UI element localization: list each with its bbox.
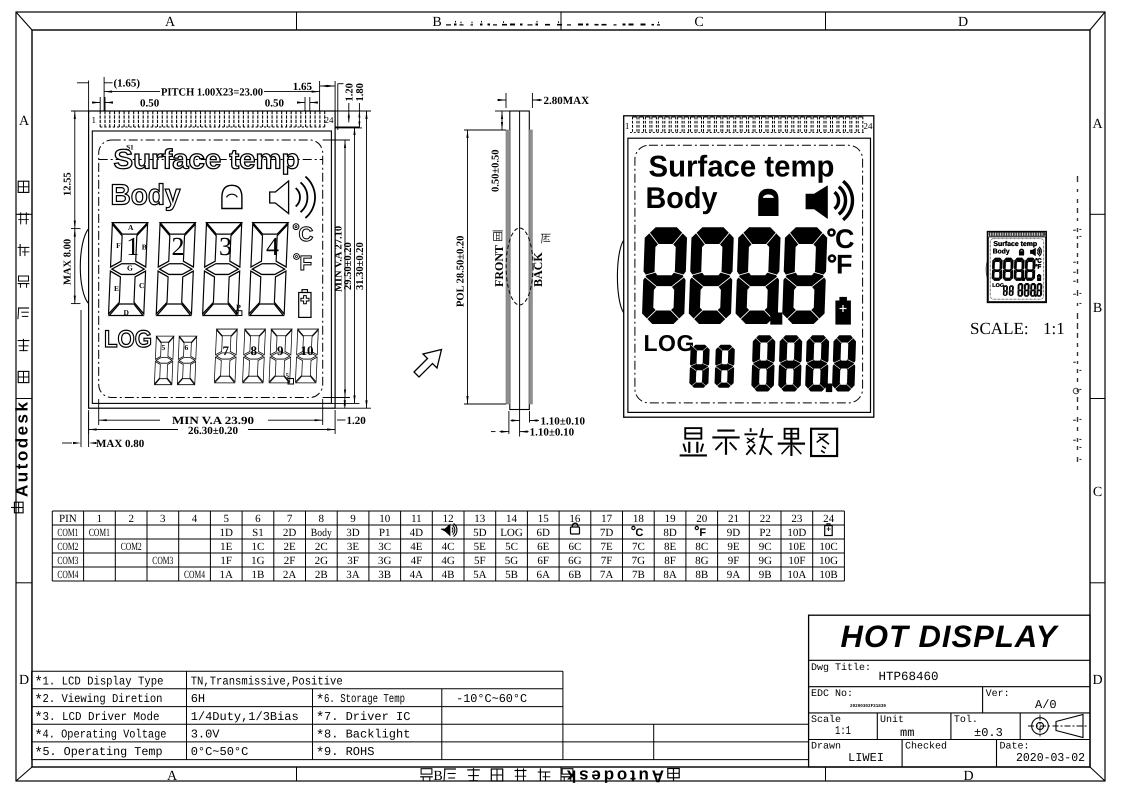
- svg-text:10G: 10G: [819, 555, 838, 567]
- svg-text:TN,Transmissive,Positive: TN,Transmissive,Positive: [191, 674, 343, 688]
- svg-text:4D: 4D: [410, 527, 424, 539]
- svg-text:B: B: [142, 243, 147, 252]
- svg-text:1.65: 1.65: [293, 81, 313, 93]
- svg-text:A: A: [167, 769, 178, 784]
- svg-text:2C: 2C: [315, 541, 328, 553]
- svg-text:6D: 6D: [536, 527, 550, 539]
- svg-text:COM1: COM1: [89, 527, 110, 539]
- svg-text:PITCH 1.00X23=23.00: PITCH 1.00X23=23.00: [161, 86, 263, 98]
- svg-text:C: C: [1093, 485, 1102, 500]
- svg-text:10F: 10F: [788, 555, 805, 567]
- svg-text:1.20: 1.20: [347, 415, 367, 427]
- svg-text:31.30±0.20: 31.30±0.20: [355, 242, 366, 290]
- svg-text:7F: 7F: [601, 555, 613, 567]
- svg-text:COM3: COM3: [57, 555, 78, 567]
- svg-text:6G: 6G: [568, 555, 582, 567]
- svg-text:Autodesk: Autodesk: [564, 767, 664, 786]
- svg-text:3G: 3G: [378, 555, 392, 567]
- svg-text:COM2: COM2: [57, 541, 78, 553]
- svg-text:2.80MAX: 2.80MAX: [544, 95, 590, 107]
- svg-text:9D: 9D: [727, 527, 741, 539]
- svg-text:C: C: [694, 15, 703, 30]
- svg-text:1D: 1D: [219, 527, 233, 539]
- svg-text:2F: 2F: [284, 555, 296, 567]
- svg-text:A: A: [19, 114, 30, 129]
- svg-text:Checked: Checked: [905, 741, 947, 753]
- svg-text:5F: 5F: [474, 555, 486, 567]
- svg-text:7: 7: [287, 513, 293, 525]
- svg-text:10E: 10E: [788, 541, 806, 553]
- svg-text:5E: 5E: [474, 541, 487, 553]
- svg-text:Body: Body: [311, 527, 332, 539]
- svg-text:17: 17: [601, 513, 613, 525]
- svg-text:S1: S1: [252, 527, 264, 539]
- svg-text:D: D: [958, 15, 968, 30]
- svg-text:1: 1: [625, 121, 630, 131]
- svg-text:B: B: [432, 15, 441, 30]
- svg-text:-10°C~60°C: -10°C~60°C: [456, 692, 527, 706]
- svg-text:8. Backlight: 8. Backlight: [324, 728, 410, 742]
- svg-text:COM2: COM2: [121, 541, 142, 553]
- svg-text:29.50±0.20: 29.50±0.20: [343, 242, 354, 290]
- svg-text:19: 19: [665, 513, 677, 525]
- svg-text:2B: 2B: [315, 569, 328, 581]
- svg-text:FRONT: FRONT: [492, 245, 506, 287]
- svg-text:A: A: [128, 223, 134, 232]
- svg-text:mm: mm: [900, 726, 914, 740]
- svg-text:4E: 4E: [410, 541, 423, 553]
- svg-text:8D: 8D: [663, 527, 677, 539]
- svg-text:4C: 4C: [442, 541, 455, 553]
- svg-text:7E: 7E: [600, 541, 613, 553]
- svg-text:Ver:: Ver:: [986, 689, 1010, 700]
- svg-text:8B: 8B: [695, 569, 708, 581]
- svg-text:8: 8: [319, 513, 325, 525]
- svg-text:2: 2: [128, 513, 134, 525]
- svg-text:1.20: 1.20: [344, 83, 355, 101]
- svg-text:A: A: [1092, 117, 1103, 132]
- svg-text:COM3: COM3: [152, 555, 173, 567]
- svg-text:13: 13: [474, 513, 486, 525]
- svg-text:1.80: 1.80: [355, 83, 366, 101]
- svg-text:9C: 9C: [759, 541, 772, 553]
- svg-text:3E: 3E: [347, 541, 360, 553]
- svg-text:D: D: [124, 308, 130, 317]
- svg-text:4. Operating Voltage: 4. Operating Voltage: [43, 728, 167, 742]
- svg-text:7C: 7C: [632, 541, 645, 553]
- svg-text:A: A: [165, 15, 176, 30]
- svg-text:2A: 2A: [283, 569, 297, 581]
- svg-text:4B: 4B: [442, 569, 455, 581]
- svg-text:F: F: [116, 241, 121, 250]
- svg-text:POL 28.50±0.20: POL 28.50±0.20: [456, 236, 467, 307]
- svg-text:1.10±0.10: 1.10±0.10: [530, 426, 575, 438]
- svg-text:HTP68460: HTP68460: [879, 670, 939, 684]
- svg-text:PIN: PIN: [59, 513, 77, 525]
- svg-text:3A: 3A: [346, 569, 360, 581]
- svg-text:5: 5: [162, 343, 166, 352]
- svg-text:7D: 7D: [600, 527, 614, 539]
- svg-text:10: 10: [301, 343, 314, 358]
- svg-text:Unit: Unit: [880, 714, 904, 726]
- svg-text:EDC No:: EDC No:: [811, 689, 853, 700]
- svg-text:10B: 10B: [819, 569, 837, 581]
- svg-text:6A: 6A: [536, 569, 550, 581]
- svg-text:F: F: [300, 252, 313, 275]
- svg-text:7. Driver IC: 7. Driver IC: [324, 710, 410, 724]
- svg-text:Drawn: Drawn: [811, 742, 841, 753]
- svg-text:2G: 2G: [315, 555, 329, 567]
- svg-text:3F: 3F: [347, 555, 359, 567]
- svg-text:SCALE:: SCALE:: [970, 319, 1029, 338]
- svg-text:C: C: [299, 223, 314, 246]
- svg-text:4G: 4G: [441, 555, 455, 567]
- svg-text:F: F: [836, 250, 853, 280]
- svg-text:3. LCD Driver Mode: 3. LCD Driver Mode: [43, 710, 160, 724]
- svg-text:1E: 1E: [220, 541, 233, 553]
- svg-text:3D: 3D: [346, 527, 360, 539]
- svg-text:4: 4: [192, 513, 198, 525]
- svg-text:12: 12: [443, 513, 454, 525]
- svg-text:COM4: COM4: [57, 569, 78, 581]
- svg-text:9A: 9A: [727, 569, 741, 581]
- svg-text:4: 4: [266, 232, 279, 261]
- svg-text:10A: 10A: [787, 569, 806, 581]
- svg-text:1B: 1B: [251, 569, 264, 581]
- svg-text:1:1: 1:1: [1043, 319, 1065, 338]
- svg-text:1C: 1C: [251, 541, 264, 553]
- svg-text:D: D: [1092, 673, 1102, 688]
- svg-text:HOT DISPLAY: HOT DISPLAY: [840, 619, 1059, 654]
- svg-text:6C: 6C: [568, 541, 581, 553]
- svg-text:9F: 9F: [728, 555, 740, 567]
- svg-text:6H: 6H: [191, 692, 205, 706]
- svg-text:5B: 5B: [505, 569, 518, 581]
- svg-text:6B: 6B: [568, 569, 581, 581]
- svg-text:1. LCD Display Type: 1. LCD Display Type: [43, 674, 164, 688]
- svg-text:6. Storage Temp: 6. Storage Temp: [324, 692, 405, 706]
- svg-text:2E: 2E: [283, 541, 296, 553]
- svg-text:12.55: 12.55: [63, 172, 74, 196]
- svg-text:0.50±0.50: 0.50±0.50: [491, 149, 502, 192]
- svg-text:Dwg Title:: Dwg Title:: [811, 662, 871, 674]
- svg-text:MAX 0.80: MAX 0.80: [96, 438, 145, 450]
- svg-text:MAX 8.00: MAX 8.00: [63, 239, 74, 285]
- svg-text:LOG: LOG: [644, 330, 695, 356]
- svg-text:24: 24: [864, 121, 874, 131]
- svg-text:0.50: 0.50: [265, 97, 285, 109]
- svg-text:23: 23: [791, 513, 803, 525]
- svg-text:24: 24: [823, 513, 835, 525]
- svg-text:5G: 5G: [505, 555, 519, 567]
- svg-text:10D: 10D: [787, 527, 806, 539]
- svg-text:3C: 3C: [378, 541, 391, 553]
- svg-text:D: D: [963, 769, 973, 784]
- svg-text:2020-03-02: 2020-03-02: [1016, 751, 1085, 765]
- svg-text:Surface temp: Surface temp: [649, 151, 835, 184]
- svg-text:5. Operating Temp: 5. Operating Temp: [43, 745, 163, 759]
- svg-text:7B: 7B: [632, 569, 645, 581]
- svg-text:2: 2: [172, 232, 185, 261]
- svg-text:6: 6: [185, 343, 189, 352]
- svg-text:8C: 8C: [695, 541, 708, 553]
- svg-text:5A: 5A: [473, 569, 487, 581]
- svg-text:COM1: COM1: [57, 527, 78, 539]
- svg-text:P1: P1: [379, 527, 391, 539]
- svg-text:3: 3: [219, 232, 232, 261]
- svg-text:6F: 6F: [537, 555, 549, 567]
- svg-text:15: 15: [538, 513, 550, 525]
- svg-text:E: E: [114, 284, 119, 293]
- svg-text:6: 6: [255, 513, 261, 525]
- svg-text:11: 11: [411, 513, 422, 525]
- svg-text:Tol.: Tol.: [954, 714, 978, 726]
- svg-text:8G: 8G: [695, 555, 709, 567]
- svg-text:10: 10: [379, 513, 391, 525]
- svg-text:9G: 9G: [758, 555, 772, 567]
- svg-text:1F: 1F: [220, 555, 232, 567]
- svg-text:±0.3: ±0.3: [974, 726, 1003, 740]
- svg-text:22: 22: [760, 513, 771, 525]
- svg-text:3: 3: [160, 513, 166, 525]
- svg-text:8A: 8A: [663, 569, 677, 581]
- svg-text:5: 5: [286, 372, 290, 380]
- svg-text:3.0V: 3.0V: [191, 728, 221, 742]
- svg-text:24: 24: [325, 115, 335, 125]
- svg-text:3B: 3B: [378, 569, 391, 581]
- svg-text:5: 5: [223, 513, 229, 525]
- svg-text:4F: 4F: [411, 555, 423, 567]
- svg-text:1A: 1A: [219, 569, 233, 581]
- svg-text:1:1: 1:1: [835, 724, 851, 738]
- svg-text:Body: Body: [111, 180, 181, 212]
- svg-text:7G: 7G: [632, 555, 646, 567]
- svg-text:Body: Body: [646, 182, 718, 215]
- svg-text:20: 20: [696, 513, 708, 525]
- svg-text:G: G: [127, 264, 133, 273]
- svg-text:B: B: [433, 769, 442, 784]
- svg-text:18: 18: [633, 513, 645, 525]
- svg-text:1G: 1G: [251, 555, 265, 567]
- svg-text:9: 9: [350, 513, 356, 525]
- svg-text:2D: 2D: [283, 527, 297, 539]
- svg-text:B: B: [1093, 301, 1102, 316]
- svg-text:1: 1: [97, 513, 103, 525]
- svg-text:9B: 9B: [759, 569, 772, 581]
- svg-text:0°C~50°C: 0°C~50°C: [191, 745, 249, 759]
- svg-text:8E: 8E: [664, 541, 677, 553]
- svg-text:20200302F31839: 20200302F31839: [850, 703, 886, 709]
- svg-text:0.50: 0.50: [140, 97, 160, 109]
- svg-text:COM4: COM4: [184, 569, 205, 581]
- svg-text:1/4Duty,1/3Bias: 1/4Duty,1/3Bias: [191, 710, 299, 724]
- svg-text:9E: 9E: [727, 541, 740, 553]
- svg-text:8F: 8F: [664, 555, 676, 567]
- svg-text:(1.65): (1.65): [114, 78, 141, 90]
- svg-text:LOG: LOG: [500, 527, 523, 539]
- svg-text:2. Viewing Diretion: 2. Viewing Diretion: [43, 692, 163, 706]
- svg-text:7: 7: [223, 343, 230, 358]
- svg-text:C: C: [139, 281, 144, 290]
- svg-text:14: 14: [506, 513, 518, 525]
- svg-text:Autodesk: Autodesk: [13, 400, 32, 497]
- svg-text:BACK: BACK: [531, 252, 545, 287]
- svg-text:9: 9: [277, 343, 284, 358]
- svg-text:26.30±0.20: 26.30±0.20: [188, 425, 239, 437]
- svg-text:9. ROHS: 9. ROHS: [324, 745, 374, 759]
- svg-text:C: C: [635, 527, 643, 539]
- svg-text:10C: 10C: [819, 541, 837, 553]
- svg-text:21: 21: [728, 513, 739, 525]
- svg-text:LOG: LOG: [104, 326, 152, 353]
- svg-text:LIWEI: LIWEI: [848, 751, 884, 765]
- svg-text:7A: 7A: [600, 569, 614, 581]
- svg-text:1: 1: [126, 232, 139, 261]
- svg-text:5D: 5D: [473, 527, 487, 539]
- svg-text:F: F: [699, 527, 706, 539]
- svg-text:1: 1: [92, 115, 97, 125]
- svg-text:Surface temp: Surface temp: [114, 144, 300, 175]
- svg-text:D: D: [19, 673, 29, 688]
- svg-text:6E: 6E: [537, 541, 550, 553]
- svg-text:4A: 4A: [410, 569, 424, 581]
- svg-text:A/0: A/0: [1035, 698, 1057, 712]
- svg-text:P2: P2: [759, 527, 771, 539]
- svg-text:5C: 5C: [505, 541, 518, 553]
- svg-text:8: 8: [251, 343, 258, 358]
